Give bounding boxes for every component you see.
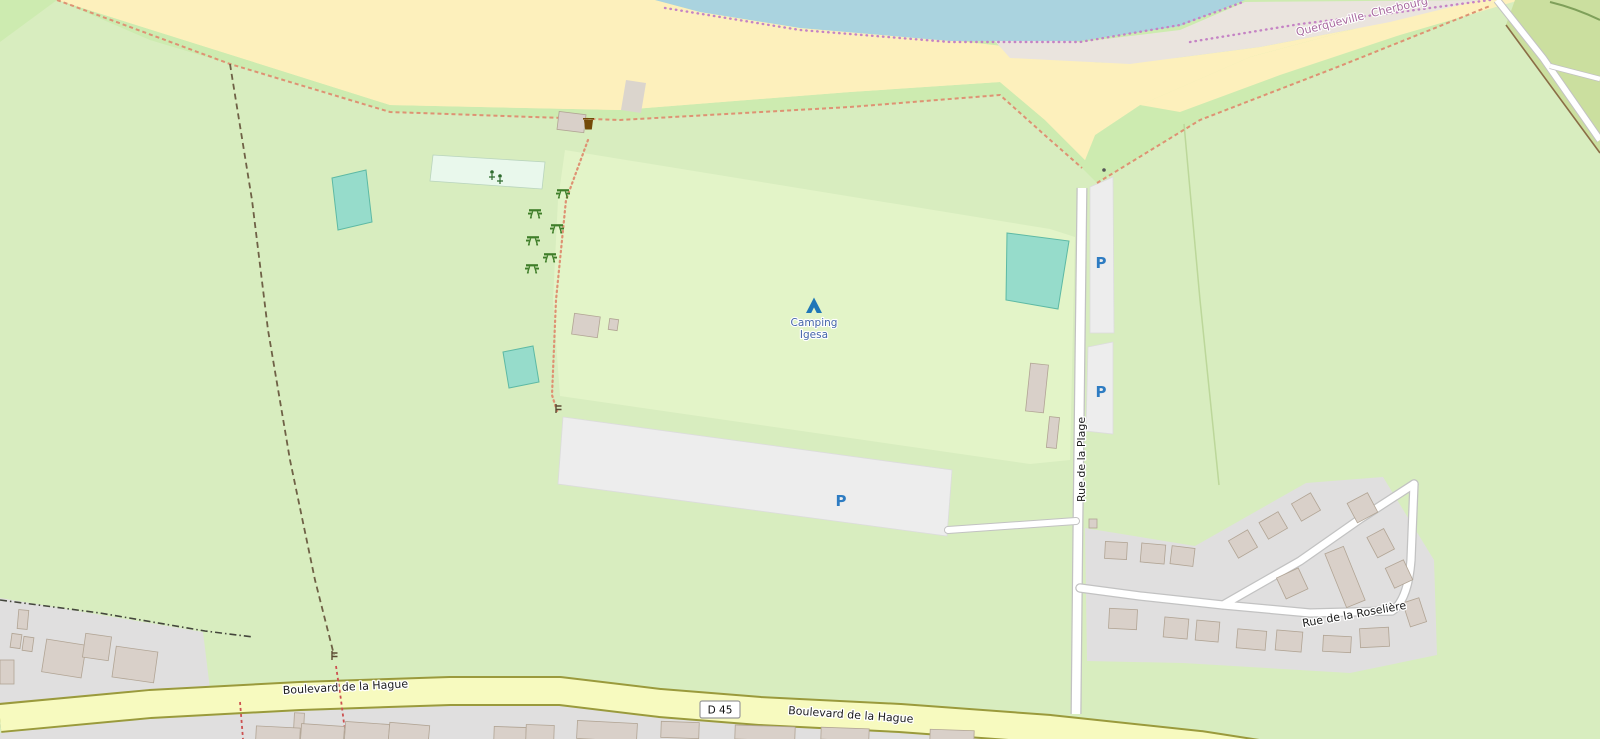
bollard-node xyxy=(1102,168,1106,172)
house xyxy=(661,721,700,738)
street-label-rue-plage: Rue de la Plage xyxy=(1075,417,1088,502)
house xyxy=(1105,541,1128,559)
building xyxy=(572,313,601,337)
building-beach-hut xyxy=(557,111,586,132)
campsite-name-line2: Igesa xyxy=(800,329,828,341)
house xyxy=(300,724,344,739)
house xyxy=(1323,635,1352,652)
house xyxy=(821,727,869,739)
house xyxy=(577,720,638,739)
route-ref-text: D 45 xyxy=(708,705,733,717)
house xyxy=(735,725,795,739)
house xyxy=(1163,617,1189,639)
house xyxy=(0,660,14,684)
house xyxy=(930,729,974,739)
house xyxy=(526,725,555,739)
house xyxy=(1108,608,1137,629)
house xyxy=(82,633,111,660)
parking-label-main: P xyxy=(836,492,847,510)
building xyxy=(608,318,618,330)
parking-label-north: P xyxy=(1096,254,1107,272)
route-ref-badge: D 45 xyxy=(700,701,740,718)
house xyxy=(1195,620,1220,642)
house xyxy=(17,610,29,630)
map-canvas[interactable]: P P P Camping Igesa Querqueville Cherbou… xyxy=(0,0,1600,739)
house xyxy=(112,646,158,683)
house xyxy=(22,636,34,651)
house xyxy=(344,721,389,739)
house xyxy=(1170,546,1195,567)
parking-label-south: P xyxy=(1096,383,1107,401)
house xyxy=(1360,627,1390,647)
campsite-name-line1: Camping xyxy=(791,317,838,329)
building xyxy=(1089,519,1097,528)
house xyxy=(42,639,87,678)
swimming-pool-small xyxy=(503,346,539,388)
house xyxy=(1236,629,1267,650)
house xyxy=(256,726,301,739)
house xyxy=(1275,630,1303,652)
swimming-pool-campsite xyxy=(1006,233,1069,309)
house xyxy=(10,633,22,648)
house xyxy=(494,726,526,739)
house xyxy=(1140,543,1166,564)
swimming-pool-northwest xyxy=(332,170,372,230)
